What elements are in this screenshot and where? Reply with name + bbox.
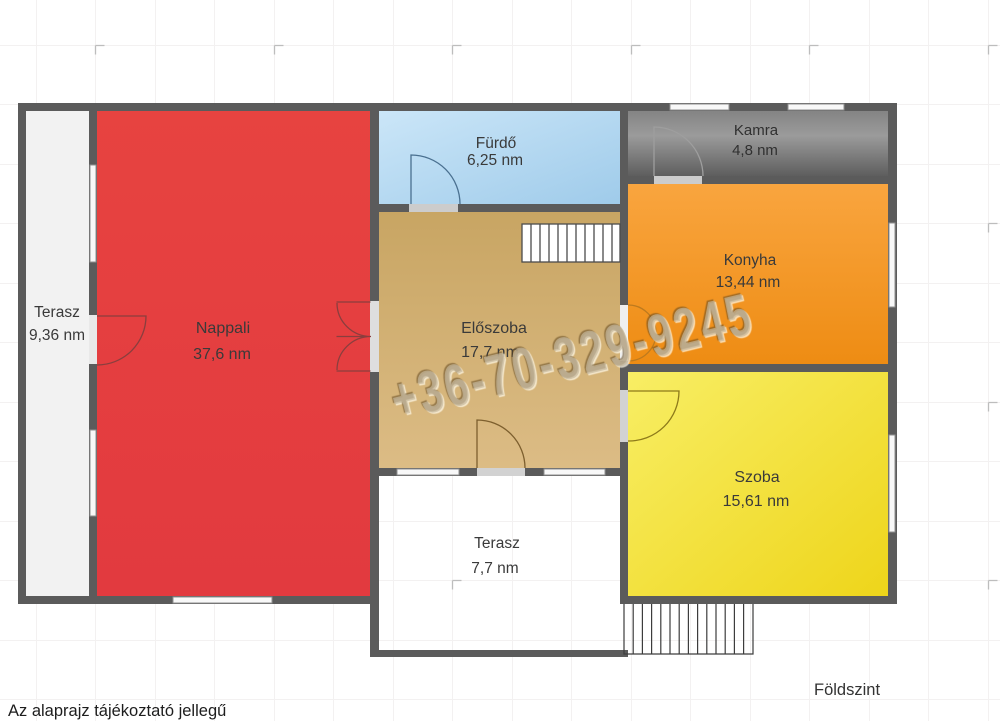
svg-text:Földszint: Földszint <box>814 681 880 699</box>
svg-text:Terasz: Terasz <box>34 304 80 321</box>
svg-text:Nappali: Nappali <box>196 320 250 337</box>
svg-text:4,8 nm: 4,8 nm <box>732 142 778 159</box>
svg-text:Szoba: Szoba <box>734 469 779 486</box>
svg-text:6,25 nm: 6,25 nm <box>467 152 523 169</box>
svg-text:Előszoba: Előszoba <box>461 320 527 337</box>
svg-text:Terasz: Terasz <box>474 535 520 552</box>
svg-text:37,6 nm: 37,6 nm <box>193 346 251 363</box>
svg-text:Konyha: Konyha <box>724 252 777 269</box>
svg-text:9,36 nm: 9,36 nm <box>29 327 85 344</box>
svg-text:15,61 nm: 15,61 nm <box>723 493 790 510</box>
svg-text:Az alaprajz tájékoztató jelleg: Az alaprajz tájékoztató jellegű <box>8 702 226 720</box>
svg-text:Kamra: Kamra <box>734 122 779 139</box>
svg-text:7,7 nm: 7,7 nm <box>471 560 518 577</box>
svg-text:Fürdő: Fürdő <box>476 135 517 152</box>
